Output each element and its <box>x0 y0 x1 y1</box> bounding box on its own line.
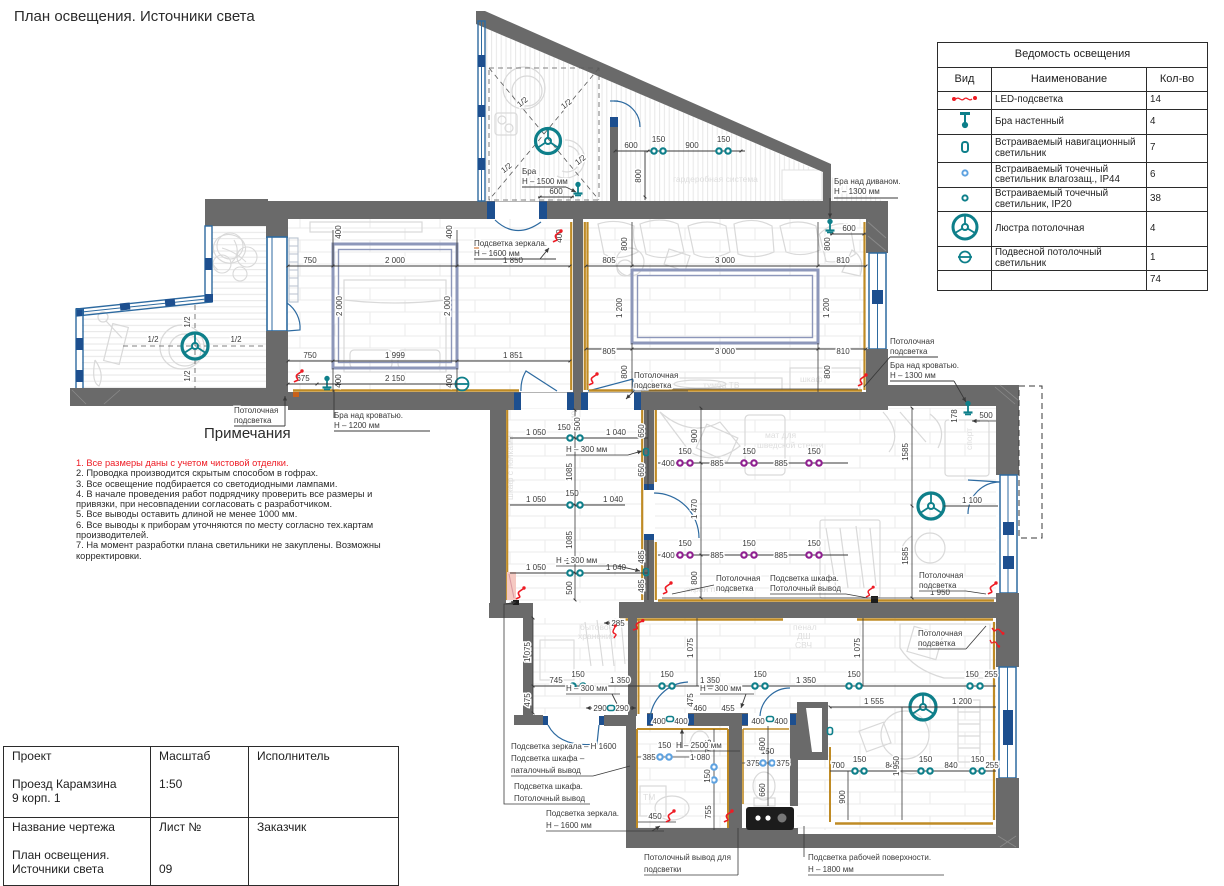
svg-text:290: 290 <box>615 704 629 713</box>
svg-text:750: 750 <box>303 256 317 265</box>
svg-text:150: 150 <box>660 670 674 679</box>
svg-text:255: 255 <box>984 670 998 679</box>
svg-text:150: 150 <box>717 135 731 144</box>
svg-text:400: 400 <box>751 717 765 726</box>
svg-text:900: 900 <box>690 429 699 443</box>
svg-text:375: 375 <box>746 759 760 768</box>
svg-text:спорт: спорт <box>964 428 974 450</box>
svg-text:Бра: Бра <box>522 167 537 176</box>
svg-text:400: 400 <box>334 374 343 388</box>
svg-text:Н – 1300 мм: Н – 1300 мм <box>834 187 880 196</box>
svg-text:750: 750 <box>303 351 317 360</box>
svg-text:800: 800 <box>690 571 699 585</box>
svg-text:460: 460 <box>693 704 707 713</box>
svg-text:800: 800 <box>620 365 629 379</box>
svg-text:150: 150 <box>571 670 585 679</box>
svg-text:400: 400 <box>661 459 675 468</box>
svg-text:1 350: 1 350 <box>796 676 817 685</box>
svg-text:1/2: 1/2 <box>230 335 242 344</box>
svg-text:150: 150 <box>753 670 767 679</box>
svg-text:1 075: 1 075 <box>523 641 532 662</box>
svg-text:885: 885 <box>774 459 788 468</box>
svg-text:1 050: 1 050 <box>526 495 547 504</box>
svg-text:Потолочная: Потолочная <box>890 337 934 346</box>
svg-text:1/2: 1/2 <box>183 370 192 382</box>
svg-text:500: 500 <box>573 417 582 431</box>
svg-text:Бра над диваном.: Бра над диваном. <box>834 177 900 186</box>
svg-text:Бра над кроватью.: Бра над кроватью. <box>890 361 959 370</box>
svg-text:150: 150 <box>807 447 821 456</box>
svg-text:150: 150 <box>965 670 979 679</box>
svg-text:1 040: 1 040 <box>606 428 627 437</box>
svg-text:Потолочный вывод: Потолочный вывод <box>770 584 841 593</box>
svg-text:450: 450 <box>648 812 662 821</box>
svg-text:385: 385 <box>642 753 656 762</box>
svg-text:2 000: 2 000 <box>443 295 452 316</box>
svg-text:700: 700 <box>831 761 845 770</box>
svg-text:805: 805 <box>602 256 616 265</box>
svg-text:150: 150 <box>742 539 756 548</box>
svg-text:800: 800 <box>634 169 643 183</box>
svg-text:Потолочная: Потолочная <box>716 574 760 583</box>
svg-text:400: 400 <box>674 717 688 726</box>
svg-text:подсветка: подсветка <box>918 639 956 648</box>
svg-text:ТМ: ТМ <box>643 792 655 802</box>
svg-text:1 100: 1 100 <box>962 496 983 505</box>
svg-text:Подсветка шкафа –: Подсветка шкафа – <box>511 754 585 763</box>
svg-text:1 040: 1 040 <box>603 495 624 504</box>
svg-text:Подсветка зеркала.: Подсветка зеркала. <box>546 809 619 818</box>
svg-text:1 950: 1 950 <box>892 755 901 776</box>
svg-text:500: 500 <box>979 411 993 420</box>
svg-text:СВЧ: СВЧ <box>795 640 812 650</box>
svg-text:Н – 2500 мм: Н – 2500 мм <box>676 741 722 750</box>
svg-text:1 350: 1 350 <box>610 676 631 685</box>
svg-text:150: 150 <box>678 539 692 548</box>
svg-text:1 470: 1 470 <box>690 498 699 519</box>
svg-text:885: 885 <box>710 551 724 560</box>
svg-text:375: 375 <box>776 759 790 768</box>
svg-text:1 999: 1 999 <box>385 351 406 360</box>
svg-text:485: 485 <box>637 579 646 593</box>
svg-text:Потолочная: Потолочная <box>919 571 963 580</box>
svg-text:810: 810 <box>836 256 850 265</box>
svg-text:900: 900 <box>838 790 847 804</box>
svg-text:150: 150 <box>557 423 571 432</box>
svg-text:650: 650 <box>637 424 646 438</box>
svg-text:3 000: 3 000 <box>715 347 736 356</box>
svg-text:подсветки: подсветки <box>644 865 681 874</box>
svg-text:1 200: 1 200 <box>952 697 973 706</box>
svg-text:Н – 1600 мм: Н – 1600 мм <box>474 249 520 258</box>
svg-text:1585: 1585 <box>901 547 910 565</box>
svg-text:660: 660 <box>758 783 767 797</box>
svg-text:150: 150 <box>703 769 712 783</box>
svg-text:150: 150 <box>807 539 821 548</box>
svg-text:Потолочная: Потолочная <box>918 629 962 638</box>
svg-text:150: 150 <box>658 741 672 750</box>
svg-text:Подсветка зеркала.: Подсветка зеркала. <box>474 239 547 248</box>
svg-text:1 851: 1 851 <box>503 351 524 360</box>
svg-text:Н – 300 мм: Н – 300 мм <box>566 684 607 693</box>
svg-text:1585: 1585 <box>901 443 910 461</box>
svg-text:900: 900 <box>685 141 699 150</box>
svg-text:800: 800 <box>823 365 832 379</box>
svg-text:1085: 1085 <box>565 531 574 549</box>
svg-text:Потолочный вывод: Потолочный вывод <box>514 794 585 803</box>
svg-text:Н – 1300 мм: Н – 1300 мм <box>890 371 936 380</box>
svg-text:Н – 1500 мм: Н – 1500 мм <box>522 177 568 186</box>
svg-text:178: 178 <box>950 409 959 423</box>
svg-text:1 075: 1 075 <box>686 637 695 658</box>
svg-text:подсветка: подсветка <box>890 347 928 356</box>
svg-text:паталочный вывод: паталочный вывод <box>511 766 581 775</box>
svg-text:подсветка: подсветка <box>234 416 272 425</box>
svg-text:подсветка: подсветка <box>716 584 754 593</box>
svg-text:подсветка: подсветка <box>634 381 672 390</box>
svg-text:1/2: 1/2 <box>147 335 159 344</box>
svg-text:Н – 1600 мм: Н – 1600 мм <box>546 821 592 830</box>
svg-text:тумба ТВ: тумба ТВ <box>703 380 740 390</box>
svg-text:Н – 300 мм: Н – 300 мм <box>700 684 741 693</box>
svg-text:150: 150 <box>742 447 756 456</box>
svg-text:150: 150 <box>971 755 985 764</box>
svg-text:1/2: 1/2 <box>183 316 192 328</box>
svg-text:Подсветка рабочей поверхности.: Подсветка рабочей поверхности. <box>808 853 931 862</box>
svg-text:805: 805 <box>602 347 616 356</box>
svg-text:675: 675 <box>296 374 310 383</box>
svg-text:Подсветка шкафа.: Подсветка шкафа. <box>770 574 839 583</box>
svg-text:Н – 1200 мм: Н – 1200 мм <box>334 421 380 430</box>
svg-text:600: 600 <box>842 224 856 233</box>
svg-text:1 050: 1 050 <box>526 428 547 437</box>
svg-text:600: 600 <box>758 737 767 751</box>
svg-text:150: 150 <box>652 135 666 144</box>
svg-text:2 000: 2 000 <box>385 256 406 265</box>
svg-text:подсветка: подсветка <box>919 581 957 590</box>
svg-text:хранение: хранение <box>578 631 616 641</box>
svg-text:285: 285 <box>611 619 625 628</box>
svg-text:600: 600 <box>549 187 563 196</box>
svg-text:400: 400 <box>774 717 788 726</box>
svg-text:600: 600 <box>624 141 638 150</box>
svg-text:Н – 300 мм: Н – 300 мм <box>556 556 597 565</box>
svg-text:Н – 1800 мм: Н – 1800 мм <box>808 865 854 874</box>
svg-text:800: 800 <box>620 237 629 251</box>
svg-text:150: 150 <box>565 489 579 498</box>
svg-text:150: 150 <box>853 755 867 764</box>
svg-text:400: 400 <box>652 717 666 726</box>
svg-text:3 000: 3 000 <box>715 256 736 265</box>
svg-text:500: 500 <box>565 581 574 595</box>
svg-text:1 080: 1 080 <box>690 753 711 762</box>
svg-text:885: 885 <box>774 551 788 560</box>
svg-text:745: 745 <box>549 676 563 685</box>
svg-text:1 200: 1 200 <box>615 297 624 318</box>
svg-text:1 555: 1 555 <box>864 697 885 706</box>
svg-text:755: 755 <box>704 805 713 819</box>
svg-text:2 150: 2 150 <box>385 374 406 383</box>
svg-text:гардеробная система: гардеробная система <box>673 174 758 184</box>
svg-text:290: 290 <box>593 704 607 713</box>
svg-text:255: 255 <box>985 761 999 770</box>
svg-text:885: 885 <box>710 459 724 468</box>
svg-text:400: 400 <box>445 225 454 239</box>
svg-text:Бра над кроватью.: Бра над кроватью. <box>334 411 403 420</box>
svg-text:1085: 1085 <box>565 463 574 481</box>
svg-text:840: 840 <box>944 761 958 770</box>
svg-text:2 000: 2 000 <box>335 295 344 316</box>
svg-text:мат для: мат для <box>765 430 797 440</box>
svg-text:400: 400 <box>334 225 343 239</box>
svg-text:150: 150 <box>847 670 861 679</box>
svg-text:150: 150 <box>678 447 692 456</box>
svg-text:650: 650 <box>637 463 646 477</box>
svg-text:1 050: 1 050 <box>526 563 547 572</box>
svg-text:1 200: 1 200 <box>822 297 831 318</box>
svg-text:Н – 300 мм: Н – 300 мм <box>566 445 607 454</box>
svg-text:810: 810 <box>836 347 850 356</box>
svg-text:Подсветка зеркала – Н 1600: Подсветка зеркала – Н 1600 <box>511 742 617 751</box>
svg-text:шкаф: шкаф <box>800 374 822 384</box>
svg-text:475: 475 <box>523 693 532 707</box>
svg-text:800: 800 <box>823 237 832 251</box>
svg-text:150: 150 <box>919 755 933 764</box>
svg-text:400: 400 <box>445 374 454 388</box>
svg-text:Потолочная: Потолочная <box>634 371 678 380</box>
svg-text:Потолочный вывод для: Потолочный вывод для <box>644 853 731 862</box>
svg-text:Потолочная: Потолочная <box>234 406 278 415</box>
svg-text:1 075: 1 075 <box>853 637 862 658</box>
svg-text:Подсветка шкафа.: Подсветка шкафа. <box>514 782 583 791</box>
svg-text:400: 400 <box>661 551 675 560</box>
svg-text:485: 485 <box>637 550 646 564</box>
svg-text:455: 455 <box>721 704 735 713</box>
